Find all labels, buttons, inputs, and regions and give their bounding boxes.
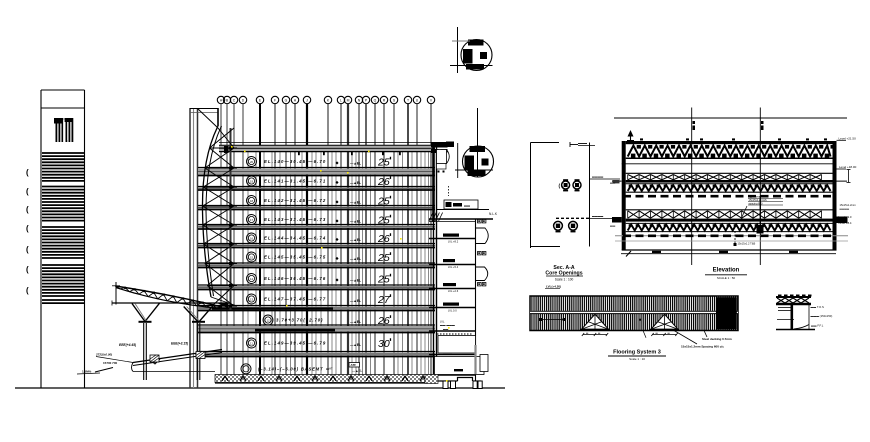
svg-text:▮: ▮ <box>390 294 392 298</box>
svg-text:(: ( <box>26 205 29 214</box>
svg-text:▬▬▬▬: ▬▬▬▬ <box>592 175 603 179</box>
svg-text:LVL(+4.20): LVL(+4.20) <box>546 285 561 289</box>
svg-text:Level +21.50: Level +21.50 <box>839 136 857 140</box>
svg-text:—▲EL: —▲EL <box>350 343 361 347</box>
svg-text:Elevation: Elevation <box>713 268 740 274</box>
svg-text:▮: ▮ <box>390 315 392 319</box>
svg-text:—▲EL: —▲EL <box>350 162 361 166</box>
svg-text:30: 30 <box>378 338 390 350</box>
svg-text:Scale 1 : 100: Scale 1 : 100 <box>555 278 574 282</box>
svg-text:15x15x1.2 T&B: 15x15x1.2 T&B <box>738 241 756 245</box>
svg-text:Scale 1 : 10: Scale 1 : 10 <box>629 357 645 361</box>
svg-text:Q: Q <box>374 99 377 103</box>
svg-text:Flooring System 3: Flooring System 3 <box>613 350 661 356</box>
svg-text:LVL +8.2: LVL +8.2 <box>448 240 459 244</box>
svg-text:▬▬▬: ▬▬▬ <box>578 141 587 145</box>
svg-text:25: 25 <box>377 252 390 264</box>
svg-text:20: 20 <box>250 160 254 164</box>
svg-text:EL.145—35.45'—6.75: EL.145—35.45'—6.75 <box>264 255 326 260</box>
svg-text:15700 700: 15700 700 <box>103 361 118 365</box>
svg-text:▬▬ T.O.S: ▬▬ T.O.S <box>811 305 824 309</box>
svg-text:SCALE 1 : 50: SCALE 1 : 50 <box>717 276 736 280</box>
svg-text:EL.144—34.45'—6.74: EL.144—34.45'—6.74 <box>264 236 326 241</box>
svg-text:▬▬▬ (150x150): ▬▬▬ (150x150) <box>811 314 833 318</box>
svg-text:▬▬ ▬▬▬: ▬▬ ▬▬▬ <box>440 323 455 327</box>
svg-text:T: T <box>407 99 409 103</box>
svg-text:26: 26 <box>377 176 390 188</box>
svg-text:J: J <box>306 99 308 103</box>
svg-text:EEE(+4.45): EEE(+4.45) <box>119 343 136 347</box>
svg-text:G: G <box>285 99 288 103</box>
svg-text:(: ( <box>26 168 29 177</box>
svg-text:14: 14 <box>250 277 254 281</box>
svg-text:M: M <box>347 99 350 103</box>
svg-text:—▲EL: —▲EL <box>352 369 362 373</box>
svg-text:▬▬: ▬▬ <box>610 182 616 185</box>
svg-text:25: 25 <box>377 215 390 227</box>
svg-text:1.5M%: 1.5M% <box>82 370 92 374</box>
svg-text:(: ( <box>26 265 29 274</box>
svg-text:EL.142—32.45'—6.72: EL.142—32.45'—6.72 <box>264 198 326 203</box>
svg-text:—▲EL: —▲EL <box>350 320 361 324</box>
svg-text:Level +18.00: Level +18.00 <box>839 165 857 169</box>
svg-text:LVL +2.6: LVL +2.6 <box>448 289 459 293</box>
svg-text:▮: ▮ <box>390 252 392 256</box>
svg-text:▮: ▮ <box>390 338 392 342</box>
svg-text:25: 25 <box>377 196 390 208</box>
svg-text:Steel decking 0.7mm: Steel decking 0.7mm <box>702 337 732 341</box>
svg-text:▬▬▬▬: ▬▬▬▬ <box>592 214 603 218</box>
svg-text:EL.143—33.45'—6.73: EL.143—33.45'—6.73 <box>264 217 326 222</box>
svg-text:EL.141—31.45'—6.71: EL.141—31.45'—6.71 <box>264 179 326 184</box>
svg-text:15x15x1.2mm Spacing 600 c/c: 15x15x1.2mm Spacing 600 c/c <box>681 345 724 349</box>
svg-text:EL.146—36.45'—6.76: EL.146—36.45'—6.76 <box>264 276 326 281</box>
svg-text:17: 17 <box>250 218 254 222</box>
svg-text:19: 19 <box>250 179 254 183</box>
svg-text:11: 11 <box>250 341 253 345</box>
svg-text:26: 26 <box>377 315 390 327</box>
svg-text:Level +9.0: Level +9.0 <box>839 215 852 219</box>
svg-text:▮: ▮ <box>390 195 392 199</box>
svg-text:—▲EL: —▲EL <box>350 257 361 261</box>
svg-text:(: ( <box>26 187 29 196</box>
svg-text:(: ( <box>26 286 29 295</box>
svg-text:2722(±0.00): 2722(±0.00) <box>95 353 112 357</box>
svg-text:26: 26 <box>377 233 390 245</box>
svg-text:▬▬ F.F.L: ▬▬ F.F.L <box>811 324 824 328</box>
svg-text:▮: ▮ <box>390 273 392 277</box>
svg-text:25: 25 <box>377 274 390 286</box>
svg-text:▬▬: ▬▬ <box>443 328 449 331</box>
svg-text:▬▬: ▬▬ <box>610 225 616 228</box>
svg-text:L: L <box>340 99 342 103</box>
svg-text:ATF: ATF <box>351 363 357 367</box>
svg-text:Level +8.4: Level +8.4 <box>839 221 852 225</box>
svg-text:25: 25 <box>377 157 390 169</box>
svg-text:▮: ▮ <box>390 214 392 218</box>
svg-text:15x15x1.2mm: 15x15x1.2mm <box>840 203 856 207</box>
svg-text:LVL 0.0: LVL 0.0 <box>448 309 457 313</box>
svg-text:12: 12 <box>266 318 270 322</box>
svg-text:(: ( <box>26 224 29 233</box>
svg-text:—▲EL: —▲EL <box>350 181 361 185</box>
svg-text:EEE(+3.15): EEE(+3.15) <box>171 342 188 346</box>
svg-text:18: 18 <box>250 199 254 203</box>
svg-text:▬▬▬▬: ▬▬▬▬ <box>840 208 850 211</box>
svg-text:(–3.14)–(–6.00) BASEMT: (–3.14)–(–6.00) BASEMT <box>258 366 323 371</box>
svg-text:▮: ▮ <box>390 176 392 180</box>
svg-text:EL.149—39.45'—6.79: EL.149—39.45'—6.79 <box>264 341 326 346</box>
svg-text:15: 15 <box>250 255 254 259</box>
svg-text:LVL +5.4: LVL +5.4 <box>448 265 459 269</box>
svg-text:—▲EL: —▲EL <box>350 279 361 283</box>
svg-text:▮: ▮ <box>390 156 392 160</box>
svg-text:▮: ▮ <box>390 233 392 237</box>
svg-text:—▲EL: —▲EL <box>350 238 361 242</box>
svg-text:▬▬: ▬▬ <box>464 204 470 208</box>
svg-text:▬AT: ▬AT <box>326 366 333 370</box>
svg-text:N.L.K: N.L.K <box>489 212 498 216</box>
svg-text:—▲EL: —▲EL <box>350 201 361 205</box>
svg-text:(: ( <box>26 245 29 254</box>
svg-text:3.70+3.70(+2.70): 3.70+3.70(+2.70) <box>276 318 323 323</box>
svg-text:13: 13 <box>250 297 254 301</box>
svg-text:—▲EL: —▲EL <box>350 299 361 303</box>
svg-text:EL.140—30.45'—6.70: EL.140—30.45'—6.70 <box>264 159 326 164</box>
svg-text:EL.147—37.45'—6.77: EL.147—37.45'—6.77 <box>264 297 326 302</box>
svg-text:16: 16 <box>250 236 254 240</box>
svg-text:—▲EL: —▲EL <box>350 220 361 224</box>
svg-text:F: F <box>274 99 276 103</box>
